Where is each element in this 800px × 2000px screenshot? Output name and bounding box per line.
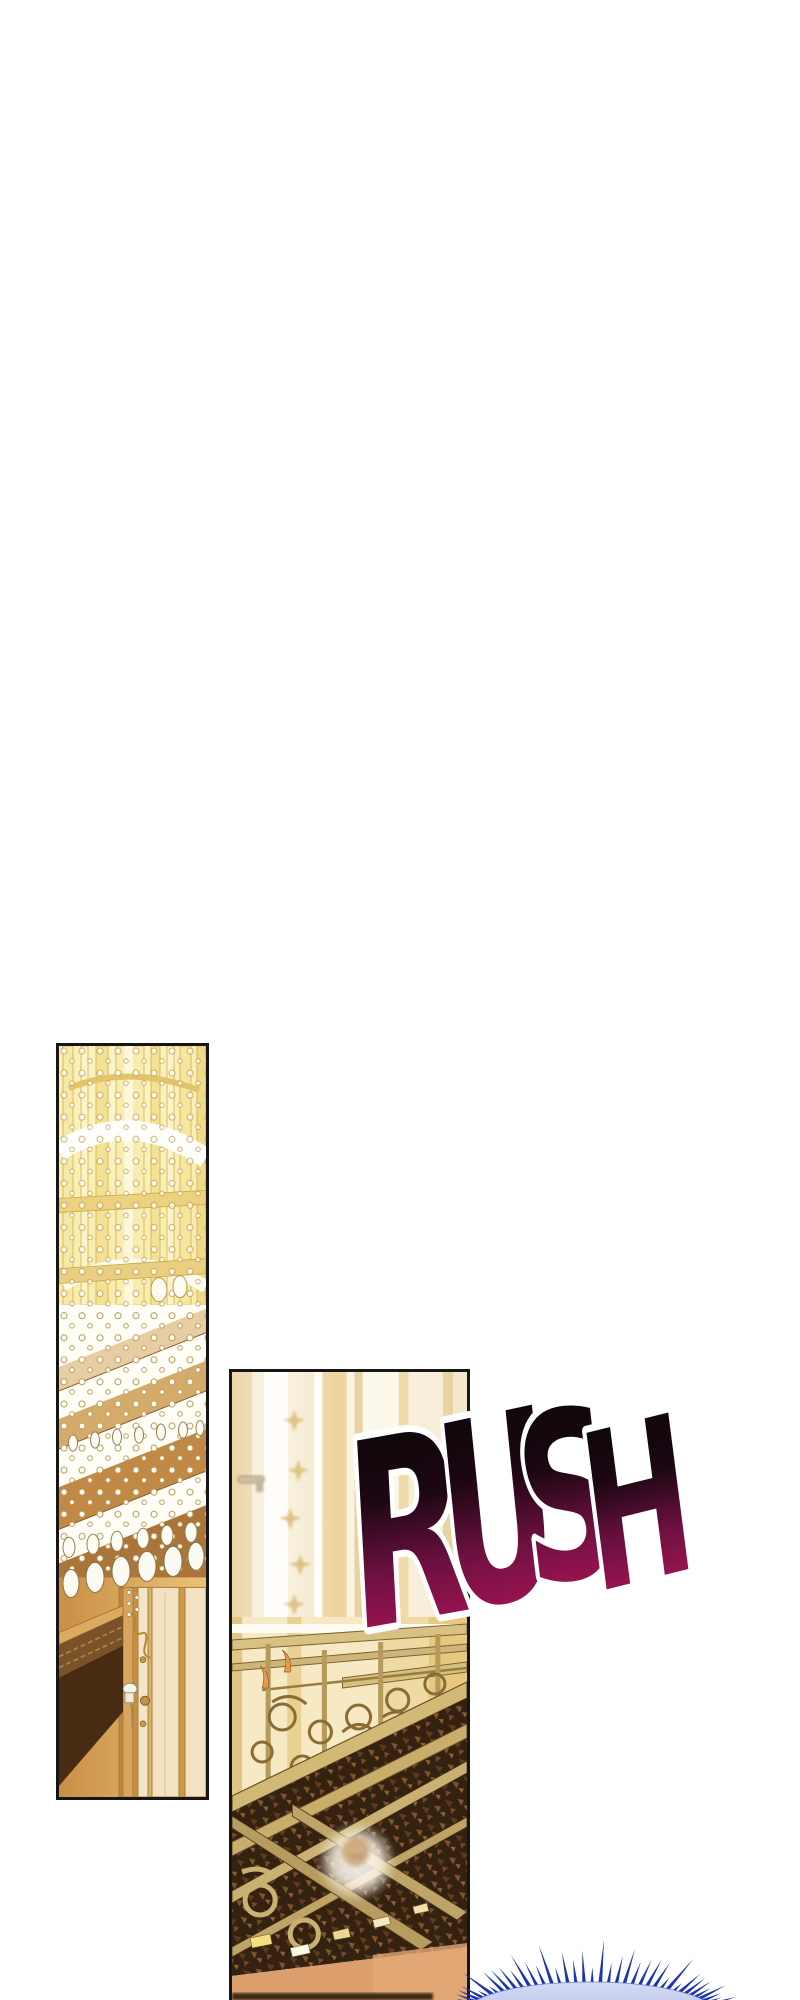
panel-chandelier	[56, 1043, 209, 1800]
impact-burst	[438, 1936, 800, 2000]
crystal-beads-zone	[59, 1305, 206, 1580]
blurred-figure	[316, 1822, 396, 1902]
chandelier-illustration	[59, 1046, 206, 1797]
chandelier-zone	[59, 1046, 206, 1307]
sfx-rush: R U S H	[352, 1386, 697, 1652]
webtoon-page: R U S H	[0, 0, 800, 2000]
hall-interior-zone	[59, 1542, 206, 1797]
burst-dome	[464, 1982, 716, 2000]
